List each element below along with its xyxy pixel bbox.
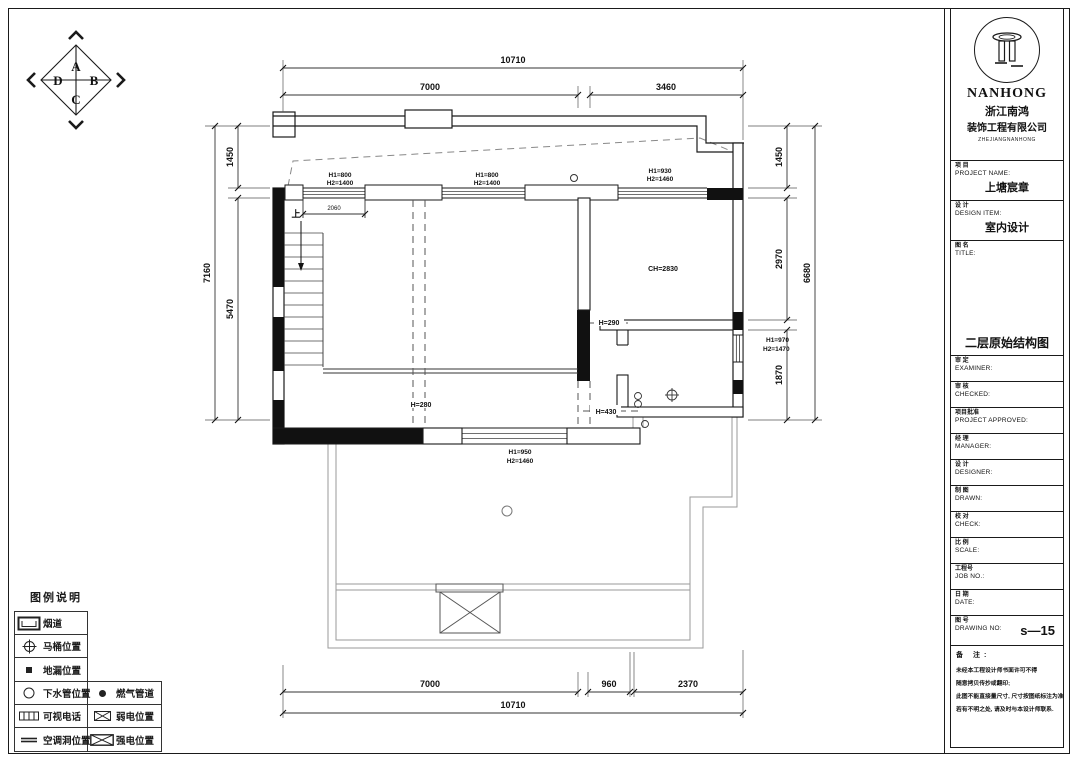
- legend-row: 地漏位置: [15, 658, 87, 681]
- field-label-en: PROJECT APPROVED:: [955, 417, 1059, 425]
- field-label-cn: 项 目: [955, 163, 1059, 170]
- legend-label: 燃气管道: [116, 686, 154, 700]
- field-label-en: DESIGN ITEM:: [955, 210, 1059, 218]
- field-designer: 设 计 DESIGNER:: [951, 460, 1063, 486]
- beam-h290-label: H=290: [599, 320, 620, 327]
- legend-label: 地漏位置: [43, 663, 81, 677]
- dim-left-outer: 7160: [202, 263, 212, 283]
- dimension-lines: [205, 60, 822, 718]
- notes-block: 备 注: 未经本工程设计师书面许可不得 随意拷贝传抄或翻印; 此图不能直接量尺寸…: [951, 646, 1063, 721]
- window-label: H1=800: [329, 172, 352, 179]
- wall-black-piers: [273, 188, 743, 444]
- legend-table-single: 烟道 马桶位置 地漏位置: [14, 611, 88, 682]
- dim-bottom-total: 10710: [500, 700, 525, 710]
- dim-bottom-a: 7000: [420, 679, 440, 689]
- field-label-en: EXAMINER:: [955, 365, 1059, 373]
- window-label: H2=1460: [507, 458, 534, 465]
- field-label-cn: 制 图: [955, 488, 1059, 495]
- company-logo-icon: [974, 17, 1040, 83]
- wall-vent-symbol: [571, 175, 578, 182]
- dim-top-a: 7000: [420, 82, 440, 92]
- legend-label: 下水管位置: [43, 686, 91, 700]
- ceiling-height-label: CH=2830: [648, 266, 678, 273]
- field-label-cn: 校 对: [955, 514, 1059, 521]
- gas-pipe-icon: [88, 689, 116, 698]
- field-label-cn: 工程号: [955, 566, 1059, 573]
- stairs: [284, 221, 323, 367]
- field-checked: 审 核 CHECKED:: [951, 382, 1063, 408]
- field-drawing-title: 图 名 TITLE: 二层原始结构图: [951, 241, 1063, 356]
- legend-row: 可视电话 弱电位置: [15, 705, 161, 728]
- notes-title: 备 注:: [956, 650, 1058, 660]
- column-logo-icon: [986, 29, 1028, 71]
- field-label-cn: 审 核: [955, 384, 1059, 391]
- strong-current-icon: [88, 734, 116, 746]
- field-design-item: 设 计 DESIGN ITEM: 室内设计: [951, 201, 1063, 241]
- note-line: 若有不明之处, 请及时与本设计师联系.: [956, 704, 1058, 717]
- field-job-no: 工程号 JOB NO.:: [951, 564, 1063, 590]
- right-wall-window: [733, 335, 743, 362]
- dim-left-b: 5470: [225, 299, 235, 319]
- company-name-sub: ZHEJIANGNANHONG: [951, 137, 1063, 143]
- field-date: 日 期 DATE:: [951, 590, 1063, 616]
- legend-label: 强电位置: [116, 733, 154, 747]
- top-window-wall: [284, 185, 707, 200]
- orientation-letter-a: A: [71, 59, 81, 74]
- dim-right-a: 1450: [774, 147, 784, 167]
- note-line: 随意拷贝传抄或翻印;: [956, 678, 1058, 691]
- orientation-letter-d: D: [53, 73, 62, 88]
- field-label-cn: 比 例: [955, 540, 1059, 547]
- orientation-symbol: A B C D: [28, 32, 124, 128]
- floor-edge-line: [323, 369, 578, 373]
- exterior-walls: [273, 110, 744, 444]
- window-label: H2=1470: [763, 346, 790, 353]
- drawing-title-value: 二层原始结构图: [955, 334, 1059, 353]
- field-label-cn: 审 定: [955, 358, 1059, 365]
- legend-label: 烟道: [43, 616, 62, 630]
- beam-height-labels: H=290 H=430 H=280: [405, 317, 624, 416]
- company-name-cn2: 装饰工程有限公司: [951, 119, 1063, 134]
- ac-hole-icon: [15, 736, 43, 744]
- field-examiner: 审 定 EXAMINER:: [951, 356, 1063, 382]
- field-label-cn: 项目批准: [955, 410, 1059, 417]
- terrace-drain-pipe-symbol: [502, 506, 512, 516]
- field-project-approved: 项目批准 PROJECT APPROVED:: [951, 408, 1063, 434]
- company-name-en: NANHONG: [951, 86, 1063, 102]
- field-label-en: JOB NO.:: [955, 573, 1059, 581]
- window-label: H1=950: [509, 449, 532, 456]
- field-label-en: DATE:: [955, 599, 1059, 607]
- dim-bottom-c: 2370: [678, 679, 698, 689]
- terrace-outline: [328, 417, 737, 648]
- field-label-en: SCALE:: [955, 547, 1059, 555]
- legend-label: 空调洞位置: [43, 733, 91, 747]
- interior-walls: [578, 198, 743, 417]
- orientation-letter-c: C: [71, 92, 80, 107]
- orientation-letter-b: B: [90, 73, 99, 88]
- project-name-value: 上塘宸章: [955, 179, 1059, 195]
- beam-h280-label: H=280: [411, 402, 432, 409]
- window-label: H2=1400: [327, 180, 354, 187]
- video-phone-icon: [15, 711, 43, 721]
- dim-right-outer: 6680: [802, 263, 812, 283]
- toilet-icon: [15, 639, 43, 654]
- stair-up-label: 上: [291, 208, 300, 219]
- field-scale: 比 例 SCALE:: [951, 538, 1063, 564]
- field-manager: 经 理 MANAGER:: [951, 434, 1063, 460]
- legend-row: 烟道: [15, 612, 87, 635]
- window-label: H2=1400: [474, 180, 501, 187]
- window-label: H1=800: [476, 172, 499, 179]
- dim-stair: 2060: [327, 206, 341, 212]
- window-label: H2=1460: [647, 176, 674, 183]
- field-label-en: PROJECT NAME:: [955, 170, 1059, 178]
- dim-top-total: 10710: [500, 55, 525, 65]
- note-line: 此图不能直接量尺寸, 尺寸按图纸标注为准: [956, 691, 1058, 704]
- field-label-en: CHECKED:: [955, 391, 1059, 399]
- drawing-no-value: s—15: [1020, 623, 1055, 638]
- beam-h430-label: H=430: [596, 409, 617, 416]
- field-check: 校 对 CHECK:: [951, 512, 1063, 538]
- field-label-en: CHECK:: [955, 521, 1059, 529]
- company-name-cn: 浙江南鸿: [951, 103, 1063, 119]
- legend-table-double: 下水管位置 燃气管道 可视电话 弱电位置: [14, 681, 162, 752]
- dimension-labels: 10710 7000 3460 7000 960 2370 10710 7160…: [202, 55, 812, 710]
- legend-title: 图例说明: [30, 589, 164, 605]
- drain-pipe-symbol: [635, 393, 642, 400]
- dim-top-b: 3460: [656, 82, 676, 92]
- field-label-cn: 图 名: [955, 243, 1059, 250]
- legend-row: 下水管位置 燃气管道: [15, 682, 161, 705]
- window-label: H1=970: [766, 337, 789, 344]
- field-drawn: 制 图 DRAWN:: [951, 486, 1063, 512]
- flue-icon: [15, 616, 43, 631]
- dim-right-c: 1870: [774, 365, 784, 385]
- dim-bottom-b: 960: [601, 679, 616, 689]
- field-label-en: MANAGER:: [955, 443, 1059, 451]
- legend-row: 空调洞位置 强电位置: [15, 728, 161, 751]
- legend-label: 马桶位置: [43, 639, 81, 653]
- legend-row: 马桶位置: [15, 635, 87, 658]
- field-label-en: TITLE:: [955, 250, 1059, 258]
- drain-pipe-icon: [15, 687, 43, 699]
- weak-current-icon: [88, 711, 116, 721]
- dim-left-a: 1450: [225, 147, 235, 167]
- titleblock-divider: [944, 8, 945, 754]
- terrace-skylight: [436, 584, 503, 633]
- field-project-name: 项 目 PROJECT NAME: 上塘宸章: [951, 161, 1063, 201]
- floor-drain-icon: [15, 666, 43, 674]
- note-line: 未经本工程设计师书面许可不得: [956, 665, 1058, 678]
- field-label-cn: 设 计: [955, 203, 1059, 210]
- field-label-cn: 日 期: [955, 592, 1059, 599]
- legend-label: 弱电位置: [116, 709, 154, 723]
- field-label-cn: 经 理: [955, 436, 1059, 443]
- field-label-en: DRAWN:: [955, 495, 1059, 503]
- beam-dashed-lines: [413, 200, 643, 428]
- field-label-cn: 设 计: [955, 462, 1059, 469]
- company-logo-block: NANHONG 浙江南鸿 装饰工程有限公司 ZHEJIANGNANHONG: [951, 9, 1063, 161]
- window-label: H1=930: [649, 168, 672, 175]
- title-block: NANHONG 浙江南鸿 装饰工程有限公司 ZHEJIANGNANHONG 项 …: [950, 8, 1064, 748]
- design-item-value: 室内设计: [955, 219, 1059, 235]
- legend: 图例说明 烟道 马桶位置 地漏位置: [14, 589, 164, 752]
- field-drawing-no: 图 号 DRAWING NO: s—15: [951, 616, 1063, 646]
- dim-right-b: 2970: [774, 249, 784, 269]
- legend-label: 可视电话: [43, 709, 81, 723]
- toilet-symbol: [665, 388, 679, 402]
- field-label-en: DESIGNER:: [955, 469, 1059, 477]
